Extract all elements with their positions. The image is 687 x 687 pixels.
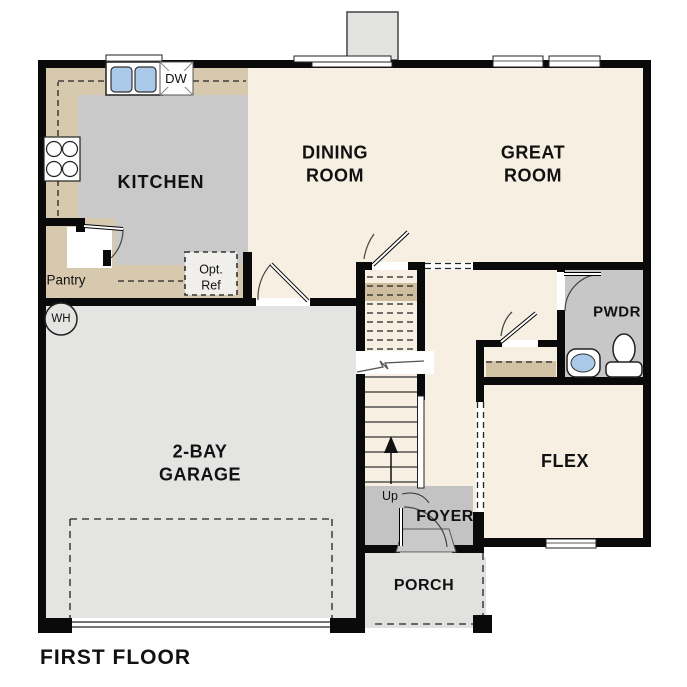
optional-refrigerator-box xyxy=(185,252,237,295)
wall-flex-left-upper xyxy=(476,340,484,402)
floor-plan: KITCHEN DINING ROOM GREAT ROOM 2-BAY GAR… xyxy=(0,0,687,687)
wall-pantry-strike xyxy=(103,250,111,266)
room-porch-floor xyxy=(365,545,486,628)
stove-burner xyxy=(47,162,62,177)
garage-entry-opening xyxy=(256,298,310,306)
toilet-tank-icon xyxy=(606,362,642,377)
wall-greatroom-south xyxy=(473,262,651,270)
stove-burner xyxy=(47,142,62,157)
window-flex xyxy=(546,539,596,548)
stair-railing xyxy=(418,396,425,488)
wall-garage-bottom-left xyxy=(38,618,72,633)
wall-porch-post xyxy=(473,615,492,633)
powder-sink-basin xyxy=(571,354,595,372)
closet-door-opening xyxy=(502,340,538,347)
closet-shelf xyxy=(486,361,556,377)
sink-basin xyxy=(135,67,156,92)
powder-door-opening xyxy=(557,272,565,310)
stove-burner xyxy=(63,142,78,157)
window-dining-a xyxy=(294,56,391,62)
chimney xyxy=(347,12,398,60)
wall-closet-powder-south xyxy=(476,377,651,385)
wall-exterior-right xyxy=(643,60,651,547)
wall-closet-top-right xyxy=(538,340,565,347)
garage-door-opening xyxy=(72,618,330,633)
floor-plan-drawing xyxy=(0,0,687,687)
wall-pantry-jamb xyxy=(76,218,85,232)
page-title: FIRST FLOOR xyxy=(40,646,191,670)
wall-stair-top-left xyxy=(365,262,372,270)
front-door-threshold xyxy=(396,529,456,552)
water-heater-icon xyxy=(45,303,77,335)
wall-kitchen-south xyxy=(38,298,365,306)
wall-stair-right xyxy=(417,262,425,400)
toilet-bowl-icon xyxy=(613,334,635,364)
window-dining-b xyxy=(312,62,392,67)
wall-garage-right xyxy=(356,262,365,633)
stove-burner xyxy=(63,162,78,177)
window-great-1 xyxy=(493,56,543,67)
window-great-2 xyxy=(549,56,600,67)
room-garage-floor xyxy=(46,298,357,628)
wall-kitchen-stub xyxy=(243,252,252,302)
sink-basin xyxy=(111,67,132,92)
